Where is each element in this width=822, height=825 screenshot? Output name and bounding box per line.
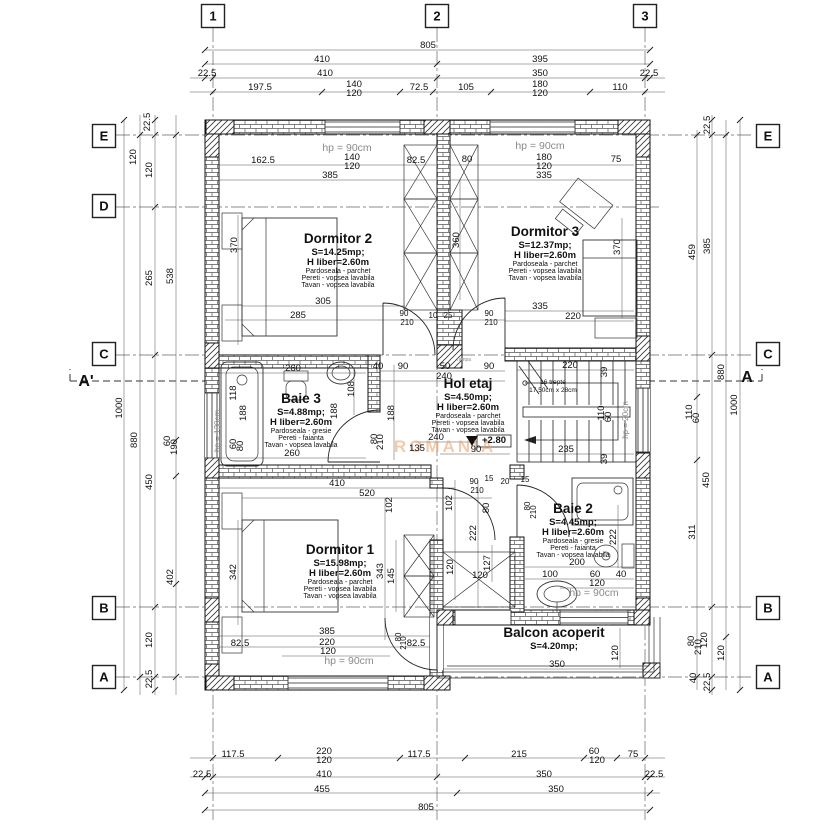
dim-label: 120 [716, 645, 727, 661]
dim-label: 360 [451, 232, 462, 248]
dim-label: 22.5 [142, 113, 153, 132]
dim-label: 90 [484, 361, 495, 372]
dim-label: 39 [599, 367, 610, 378]
dim-label: 135 [409, 443, 425, 454]
dim-label: 22.5 [198, 68, 217, 79]
dim-label: 90 [398, 361, 409, 372]
dim-label: 10 [429, 311, 438, 320]
dim-label: 120 [532, 88, 548, 99]
dim-label: 90 [470, 477, 479, 486]
staircase [517, 361, 636, 462]
room-finish: Pardoseala - parchet [513, 261, 578, 268]
wall-stub [430, 478, 443, 488]
dim-label: 410 [316, 769, 332, 780]
room-finish: Pereti - vopsea lavabila [509, 268, 582, 275]
dim-label: 40 [616, 569, 627, 580]
room-name: Dormitor 3 [511, 224, 580, 239]
room-finish: Pardoseala - parchet [306, 268, 371, 275]
wall-dormitor1-top [205, 465, 431, 478]
dim-label: 20 [501, 477, 510, 486]
dim-label: 220 [562, 360, 578, 371]
dim-label: 22.5 [702, 116, 713, 135]
dim-label: hp = 90cm [569, 587, 619, 599]
grid-bubbles: 123EDCBAECBAA'A [78, 5, 779, 689]
dim-label: 210 [375, 434, 386, 450]
dim-label: 80 [235, 441, 246, 452]
dim-label: 410 [329, 478, 345, 489]
dim-label: 120 [610, 645, 621, 661]
dim-label: 117.5 [407, 749, 430, 760]
room-finish: Pereti - vopsea lavabila [432, 420, 505, 427]
room-finish: Tavan - vopsea lavabila [536, 552, 609, 559]
dim-label: 72.5 [410, 82, 429, 93]
dim-label: 197.5 [248, 82, 272, 93]
dim-label: 120 [316, 755, 332, 766]
dim-label: 385 [702, 238, 713, 254]
dim-label: 260 [285, 363, 301, 374]
dim-label: 60 [691, 413, 702, 424]
dim-label: 25 [444, 311, 453, 320]
dim-label: 117.5 [221, 749, 244, 760]
room-height: H liber=2.60m [309, 568, 371, 579]
grid-bubble-label: 2 [433, 9, 440, 24]
dim-label: 100 [542, 569, 558, 580]
dim-label: 82.5 [407, 155, 426, 166]
dim-label: 285 [290, 310, 306, 321]
dim-label: 22.5 [702, 673, 713, 692]
dim-label: 311 [687, 524, 698, 539]
dim-label: hp = 20cm [621, 401, 630, 439]
dim-label: 108 [346, 381, 357, 397]
dim-label: 215 [511, 749, 527, 760]
dim-label: 1000 [729, 394, 740, 415]
dim-label: 120 [699, 632, 710, 648]
dim-label: 90 [400, 309, 409, 318]
dim-label: 342 [228, 564, 239, 580]
dim-label: 1000 [114, 397, 125, 418]
grid-lines [70, 28, 762, 820]
dim-label: hp = 90cm [515, 140, 565, 152]
door-dormitor2 [383, 303, 435, 355]
dim-label: 385 [322, 170, 338, 181]
room-height: H liber=2.60m [514, 250, 576, 261]
room-finish: Tavan - vopsea lavabila [264, 442, 337, 449]
room-finish: Pardoseala - gresie [543, 538, 604, 545]
room-height: H liber=2.60m [437, 402, 499, 413]
dim-label: 40 [373, 361, 384, 372]
dim-label: 80 [462, 154, 473, 165]
dim-label: 120 [445, 559, 456, 575]
dim-label: 210 [470, 486, 484, 495]
dim-label: 110 [612, 82, 627, 93]
section-marker: A' [78, 373, 93, 390]
dim-label: 385 [319, 626, 335, 637]
dim-label: 210 [399, 636, 408, 650]
dim-label: 22.5 [640, 68, 659, 79]
room-finish: Pereti - vopsea lavabila [304, 586, 377, 593]
dim-label: 235 [558, 444, 574, 455]
dim-label: 120 [128, 149, 139, 165]
room-name: Balcon acoperit [503, 625, 605, 640]
dim-label: 82.5 [407, 638, 426, 649]
dim-label: 350 [532, 68, 548, 79]
room-area: S=4.20mp; [530, 641, 578, 652]
grid-bubble-label: C [763, 347, 773, 362]
dim-label: 22.5 [144, 670, 155, 689]
dim-label: 120 [144, 162, 155, 178]
room-finish: Pereti - vopsea lavabila [302, 275, 375, 282]
room-height: H liber=2.60m [270, 417, 332, 428]
grid-bubble-label: 1 [209, 9, 216, 24]
dim-label: 305 [315, 296, 331, 307]
dim-label: 222 [608, 529, 619, 545]
dim-label: 880 [716, 364, 727, 380]
room-finish: Pereti - faianta [550, 545, 596, 552]
dim-label: 120 [144, 632, 155, 648]
dim-label: hp = 130cm [213, 410, 222, 452]
dim-label: 335 [536, 170, 552, 181]
dim-label: 335 [532, 301, 548, 312]
dim-label: 210 [400, 318, 414, 327]
dim-label: 127 [482, 555, 493, 571]
dim-label: 350 [536, 769, 552, 780]
dim-label: 82.5 [231, 638, 250, 649]
grid-bubble-label: D [99, 199, 108, 214]
dim-label: 370 [229, 237, 240, 253]
dim-label: 105 [458, 82, 474, 93]
wall-exterior-right [636, 134, 650, 625]
dim-label: 75 [611, 154, 622, 165]
dim-label: 210 [484, 318, 498, 327]
dim-label: 260 [284, 448, 300, 459]
dim-label: 102 [444, 495, 455, 511]
room-finish: Tavan - vopsea lavabila [301, 282, 374, 289]
dim-label: 60 [603, 412, 614, 423]
windows [205, 120, 650, 690]
dim-label: 370 [612, 239, 623, 255]
dim-label: hp = 90cm [324, 655, 374, 667]
dim-label: 90 [471, 444, 482, 455]
dim-label: 120 [589, 755, 605, 766]
dim-label: 22.5 [193, 769, 212, 780]
dim-label: 40 [688, 673, 699, 684]
floor-plan-sheet: ROMANIA 80541039522.541035022.5197.51401… [0, 0, 822, 825]
room-height: H liber=2.60m [542, 527, 604, 538]
dim-label: 210 [529, 505, 538, 519]
dim-label: 120 [346, 88, 362, 99]
grid-bubble-label: 3 [641, 9, 648, 24]
room-finish: Pardoseala - parchet [436, 413, 501, 420]
dim-label: 410 [314, 54, 330, 65]
dim-label: 880 [129, 432, 140, 448]
dim-label: 188 [386, 405, 397, 421]
grid-bubble-label: C [99, 347, 109, 362]
dim-label: 118 [228, 385, 239, 400]
dim-label: 538 [165, 268, 176, 284]
room-finish: Pardoseala - parchet [308, 579, 373, 586]
dim-label: 265 [144, 270, 155, 286]
dim-label: 39 [599, 454, 610, 465]
room-name: Baie 3 [281, 391, 321, 406]
room-name: Hol etaj [444, 376, 493, 391]
room-name: Baie 2 [553, 501, 593, 516]
dim-label: 459 [687, 244, 698, 260]
wall-chimney [437, 134, 450, 310]
grid-bubble-label: B [763, 601, 772, 616]
dim-label: rampa [457, 357, 471, 363]
dim-label: 805 [420, 40, 436, 51]
dim-label: 350 [548, 784, 564, 795]
dim-label: 15 [485, 474, 494, 483]
dim-label: 17,50cm x 28cm [529, 387, 577, 394]
room-finish: Pereti - faianta [278, 435, 324, 442]
dim-label: 22.5 [645, 769, 664, 780]
grid-bubble-label: E [100, 129, 109, 144]
dim-label: 343 [375, 563, 386, 579]
walls [205, 120, 660, 690]
room-name: Dormitor 1 [306, 542, 375, 557]
room-height: H liber=2.60m [307, 257, 369, 268]
dim-label: 222 [468, 525, 479, 541]
room-finish: Pardoseala - gresie [271, 428, 332, 435]
dim-label: 450 [701, 472, 712, 488]
floor-plan-drawing: ROMANIA 80541039522.541035022.5197.51401… [0, 0, 822, 825]
dim-label: 15 [521, 475, 530, 484]
room-name: Dormitor 2 [304, 231, 372, 246]
dim-label: 402 [165, 569, 176, 585]
dim-label: 80 [481, 503, 492, 514]
dim-label: 120 [472, 570, 488, 581]
dim-label: 395 [532, 54, 548, 65]
dim-label: 75 [628, 749, 639, 760]
grid-bubble-label: A [99, 670, 109, 685]
dim-label: 350 [549, 659, 565, 670]
dim-label: 805 [418, 802, 434, 813]
dim-label: 162.5 [251, 155, 275, 166]
dim-label: 102 [384, 497, 395, 513]
wall-baie2-left [510, 537, 524, 612]
section-marker: A [741, 369, 753, 386]
dim-label: 188 [238, 405, 249, 421]
dim-label: 190 [169, 439, 180, 455]
grid-bubble-label: B [99, 601, 108, 616]
grid-bubble-label: A [763, 670, 773, 685]
dim-label: 410 [317, 68, 333, 79]
dim-label: 520 [359, 488, 375, 499]
dim-label: 90 [485, 309, 494, 318]
grid-bubble-label: E [764, 129, 773, 144]
dim-label: 450 [144, 474, 155, 490]
room-finish: Tavan - vopsea lavabila [303, 593, 376, 600]
dim-label: 16 trepte [540, 379, 566, 386]
dim-label: 120 [344, 161, 360, 172]
bed-dormitor3 [583, 240, 637, 338]
dim-label: +2.80 [482, 435, 506, 446]
room-finish: Tavan - vopsea lavabila [508, 275, 581, 282]
dim-label: 145 [386, 568, 397, 584]
dim-label: 455 [314, 784, 330, 795]
dim-label: 220 [565, 311, 581, 322]
room-finish: Tavan - vopsea lavabila [431, 427, 504, 434]
